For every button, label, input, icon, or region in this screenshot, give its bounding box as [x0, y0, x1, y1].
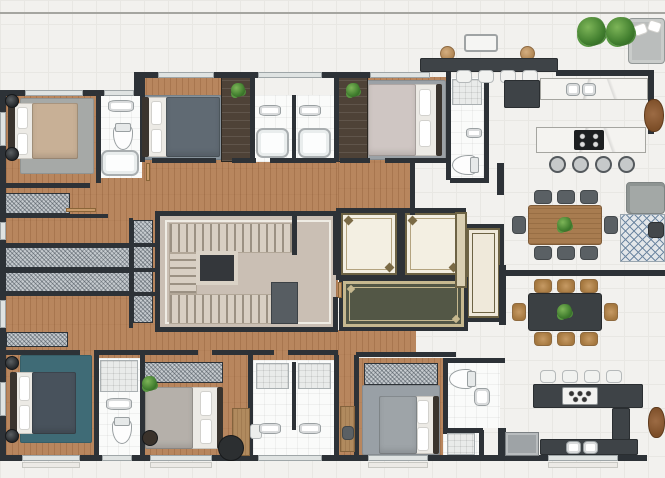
side-table-bl-2: [5, 429, 19, 443]
bed-d-pillow-1: [200, 391, 212, 416]
island-b-cooktop: [562, 387, 598, 405]
wall-dining-west-upper: [497, 163, 504, 195]
kitchen-sink-2: [582, 83, 596, 96]
dining1-chair-s2: [557, 246, 575, 260]
lobby-hallway: [343, 281, 464, 327]
bar-stool-2: [478, 70, 494, 83]
wall-baths-top-divider: [292, 95, 296, 158]
wall-stair-east-upper: [333, 211, 338, 275]
window-bottom-1: [22, 455, 80, 461]
sill-bottom-4: [548, 462, 618, 468]
shower-baths-bottom-2: [298, 363, 331, 389]
wall-bath-tr-east: [484, 72, 489, 180]
dining1-chair-s3: [580, 246, 598, 260]
bed-f-blanket: [379, 396, 417, 454]
elevator-2: [405, 213, 461, 275]
island-b-stool-1: [540, 370, 556, 383]
dining1-chair-w: [512, 216, 526, 234]
window-left-2: [0, 222, 6, 240]
wall-top-row-south-3: [232, 158, 256, 163]
dining1-chair-n1: [534, 190, 552, 204]
door-leaf-bedroom-c: [146, 163, 150, 181]
bed-f-pillow-1: [417, 400, 429, 424]
wall-powder-west: [443, 358, 448, 434]
sill-bottom-1: [22, 462, 80, 468]
side-table-a-2: [5, 147, 19, 161]
bed-d-pillow-2: [200, 419, 212, 444]
bed-e-blanket: [368, 84, 416, 156]
closet-bedroom-f: [364, 363, 438, 385]
wall-bedroom-c-east: [250, 72, 255, 162]
wall-bedroom-a-south: [0, 183, 90, 188]
appliance-b: [505, 432, 539, 456]
window-left-1: [0, 112, 6, 146]
bed-e-pillow-1: [419, 89, 431, 116]
wall-bedroom-e-south-2: [385, 158, 448, 163]
terrace-edge-line: [0, 12, 665, 14]
island-stool-2: [572, 156, 589, 173]
pouf-d: [142, 430, 158, 446]
window-bottom-6: [548, 455, 618, 461]
centerpiece-2: [557, 304, 572, 319]
bathtub-bath-tl: [101, 150, 139, 176]
bed-bl-pillow-1: [19, 376, 30, 401]
wall-stair-north: [155, 211, 338, 216]
wall-top-row-south-4: [270, 158, 336, 163]
bar-stool-1: [456, 70, 472, 83]
bed-bl-pillow-2: [19, 405, 30, 430]
desk-chair-right: [342, 426, 354, 440]
sink-bath-tl: [108, 100, 134, 112]
wall-baths-bottom-divider: [292, 362, 296, 430]
shower-bath-bl: [100, 360, 138, 392]
sink-baths-top-1: [259, 105, 281, 116]
side-table-a-1: [5, 94, 19, 108]
wall-stair-south: [155, 327, 338, 332]
dining2-chair-s2: [557, 332, 575, 346]
wall-corridor-south-3: [212, 350, 274, 355]
centerpiece-1: [557, 217, 572, 232]
side-plant-d: [142, 376, 157, 391]
wall-powder-north: [443, 358, 505, 363]
wall-bedroom-e-south-1: [340, 158, 370, 163]
sink-bath-bl: [106, 398, 132, 410]
closet-bedroom-bl: [6, 332, 68, 347]
wall-closet-entry-south: [0, 214, 108, 218]
wall-stair-west: [155, 211, 160, 332]
wall-bedroom-bl-east: [94, 355, 99, 457]
window-top-4: [258, 72, 322, 78]
bed-bl-blanket: [32, 372, 76, 434]
counter-b-sink-2: [583, 441, 598, 454]
elevator-1: [341, 213, 397, 275]
stair-core: [196, 251, 238, 285]
sink-baths-bottom-2: [299, 423, 321, 434]
bed-c-pillow-2: [151, 129, 162, 153]
wall-stair-east-lower: [333, 297, 338, 332]
plant-on-wardrobe-c: [231, 83, 245, 97]
bed-a-blanket: [32, 103, 78, 159]
bed-c-blanket: [166, 97, 220, 157]
shower-baths-top-2: [298, 128, 331, 158]
dining2-chair-n1: [534, 279, 552, 293]
wall-bedroom-e-east: [446, 72, 451, 180]
shower-baths-top-1: [256, 128, 289, 158]
sink-baths-bottom-1: [259, 423, 281, 434]
shower-room-tile: [447, 433, 475, 455]
window-top-5: [370, 72, 430, 78]
window-top-2: [104, 90, 134, 96]
dining2-chair-n2: [557, 279, 575, 293]
toilet-bath-tr: [452, 155, 478, 175]
wall-baths-top-east: [334, 72, 339, 162]
toilet-powder: [449, 369, 475, 389]
window-bottom-2: [102, 455, 132, 461]
wall-hall-upper-east: [410, 162, 415, 215]
counter-b-sink-1: [566, 441, 581, 454]
armchair-b: [648, 407, 665, 438]
bed-f-headboard: [433, 396, 439, 454]
wall-closet-vertical-west: [129, 218, 133, 328]
vanity-powder: [474, 388, 490, 406]
island-b-stool-3: [584, 370, 600, 383]
armchair-kitchen: [644, 99, 664, 132]
island-b-stool-2: [562, 370, 578, 383]
window-left-4: [0, 382, 6, 416]
island-cooktop: [574, 130, 604, 150]
shower-baths-bottom-1: [256, 363, 289, 389]
island-stool-4: [618, 156, 635, 173]
window-top-3: [158, 72, 214, 78]
dining1-chair-n3: [580, 190, 598, 204]
island-stool-1: [549, 156, 566, 173]
dining2-chair-w: [512, 303, 526, 321]
wall-baths-bottom-east: [334, 355, 339, 457]
wall-top-row-south-2: [152, 158, 216, 163]
side-table-bl-1: [5, 356, 19, 370]
dining1-chair-n2: [557, 190, 575, 204]
wall-bath-tr-south: [450, 178, 489, 183]
wall-bedroom-f-north: [356, 352, 456, 357]
dining1-chair-e: [604, 216, 618, 234]
window-bottom-4: [258, 455, 322, 461]
dining2-chair-s3: [580, 332, 598, 346]
stair-duct: [271, 282, 298, 324]
sofa-lounge: [626, 182, 665, 214]
bed-bl-headboard: [10, 372, 17, 434]
bed-c-headboard: [142, 97, 149, 157]
terrace-plant-2: [606, 17, 635, 46]
service-cab: [467, 228, 500, 318]
closet-entry: [5, 193, 70, 214]
ottoman-lounge: [648, 222, 664, 238]
window-bottom-5: [368, 455, 428, 461]
island-b-arm: [612, 408, 630, 440]
wall-shower-room-east: [479, 430, 484, 461]
wall-dining-west-lower: [499, 265, 506, 325]
wall-corridor-south-1: [0, 350, 80, 355]
bed-a-pillow-1: [17, 107, 28, 129]
wall-corridor-south-4: [288, 350, 338, 355]
door-leaf-corridor: [66, 208, 96, 212]
door-leaf-stair: [338, 282, 342, 298]
terrace-plant-1: [577, 17, 606, 46]
fridge-unit: [504, 80, 540, 108]
dining1-chair-s1: [534, 246, 552, 260]
wall-corridor-south-2: [94, 350, 198, 355]
plant-on-wardrobe-e: [346, 83, 360, 97]
window-bottom-3: [150, 455, 212, 461]
sill-bottom-2: [150, 462, 212, 468]
stair-flight-left: [169, 253, 197, 294]
bed-e-pillow-2: [419, 120, 431, 147]
console-art: [455, 212, 467, 288]
window-left-3: [0, 300, 6, 328]
floor-plan: [0, 0, 665, 478]
island-b-stool-4: [606, 370, 622, 383]
dining2-chair-e: [604, 303, 618, 321]
kitchen-sink-1: [566, 83, 580, 96]
sink-baths-top-2: [299, 105, 321, 116]
wall-stair-stub: [292, 215, 297, 255]
island-stool-3: [595, 156, 612, 173]
bed-e-headboard: [436, 84, 442, 156]
window-top-1: [25, 90, 83, 96]
terrace-table: [464, 34, 498, 52]
wood-floor-upper-hall: [338, 162, 412, 215]
round-chair-hall: [218, 435, 244, 461]
wall-top-kitchen: [556, 70, 654, 76]
stair-flight-top: [169, 223, 297, 253]
sill-bottom-3: [368, 462, 428, 468]
dining2-chair-s1: [534, 332, 552, 346]
bed-f-pillow-2: [417, 427, 429, 451]
wall-dining-divider: [504, 270, 665, 276]
sink-bath-tr: [466, 128, 482, 138]
dining2-chair-n3: [580, 279, 598, 293]
bed-c-pillow-1: [151, 101, 162, 125]
